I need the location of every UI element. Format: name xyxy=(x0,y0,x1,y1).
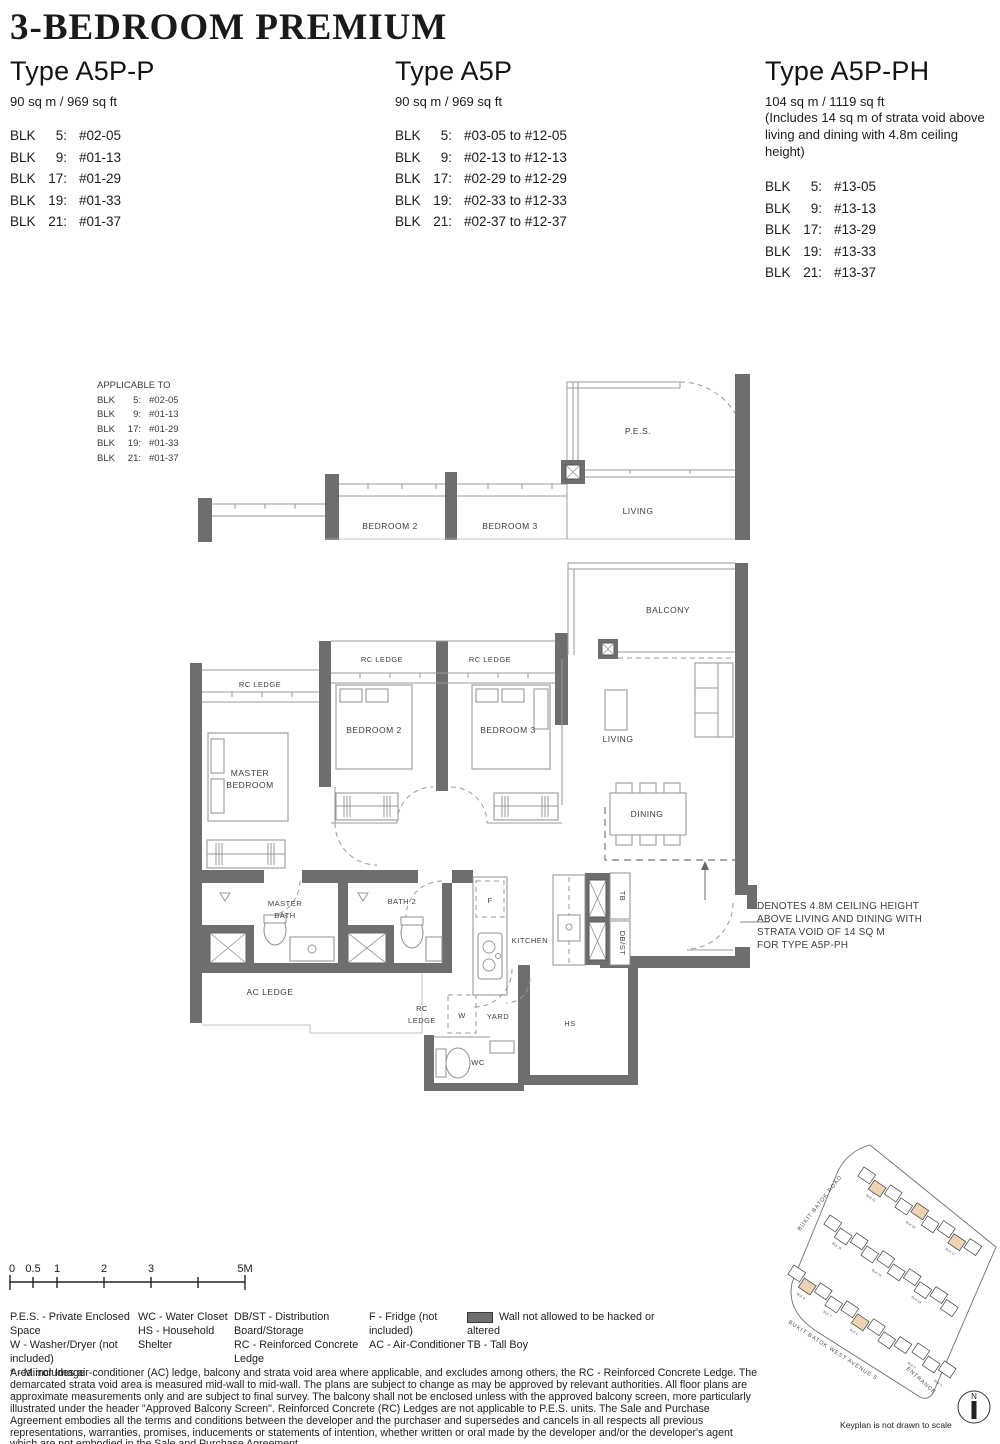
keyplan-unit xyxy=(964,1239,982,1256)
block-row: BLK9:#01-13 xyxy=(10,147,340,169)
keyplan-unit xyxy=(921,1216,939,1233)
legend-column-4: F - Fridge (not included) AC - Air-Condi… xyxy=(369,1310,467,1352)
keyplan-unit xyxy=(937,1221,955,1238)
keyplan-blk-label: BLK 13 xyxy=(871,1268,883,1278)
keyplan-block-row: BLK 3BLK 1 xyxy=(905,1343,957,1389)
keyplan-unit xyxy=(814,1283,832,1300)
type-column-a5p: Type A5P 90 sq m / 969 sq ft BLK5:#03-05… xyxy=(395,56,725,233)
block-row: BLK9:#02-13 to #12-13 xyxy=(395,147,725,169)
block-row: BLK19:#02-33 to #12-33 xyxy=(395,190,725,212)
keyplan-unit xyxy=(877,1251,895,1268)
rc-ledge-label-2: RC LEDGE xyxy=(361,655,403,664)
keyplan-block-row: BLK 9BLK 7BLK 5 xyxy=(781,1265,912,1364)
keyplan-unit xyxy=(850,1233,868,1250)
keyplan-unit xyxy=(887,1264,905,1281)
applicable-row: BLK21:#01-37 xyxy=(97,452,179,467)
keyplan-unit xyxy=(834,1228,852,1245)
keyplan-unit xyxy=(841,1301,859,1318)
strata-void-annotation: DENOTES 4.8M CEILING HEIGHT ABOVE LIVING… xyxy=(757,900,957,952)
block-row: BLK5:#03-05 to #12-05 xyxy=(395,125,725,147)
living-label: LIVING xyxy=(603,734,634,744)
keyplan-unit xyxy=(878,1332,896,1349)
block-row: BLK19:#13-33 xyxy=(765,241,1000,263)
applicable-row: BLK19:#01-33 xyxy=(97,437,179,452)
legend-column-5: Wall not allowed to be hacked or altered… xyxy=(467,1310,667,1352)
svg-text:3: 3 xyxy=(148,1263,154,1275)
keyplan-unit xyxy=(914,1282,932,1299)
keyplan: BLK 21BLK 19BLK 17BLK 11BLK 13BLK 15BLK … xyxy=(778,1135,1000,1440)
keyplan-unit-highlighted xyxy=(851,1314,869,1331)
type-name: Type A5P xyxy=(395,56,725,87)
fridge-label: F xyxy=(487,896,492,905)
type-note: (Includes 14 sq m of strata void above xyxy=(765,109,1000,126)
keyplan-unit xyxy=(858,1167,876,1184)
keyplan-caption: Keyplan is not drawn to scale xyxy=(840,1420,952,1430)
svg-text:0.5: 0.5 xyxy=(25,1263,40,1275)
upper-living-label: LIVING xyxy=(623,506,654,516)
bath2-label: BATH 2 xyxy=(388,897,417,906)
keyplan-blk-label: BLK 11 xyxy=(831,1241,842,1250)
keyplan-unit xyxy=(867,1319,885,1336)
block-list: BLK5:#13-05 BLK9:#13-13 BLK17:#13-29 BLK… xyxy=(765,176,1000,284)
applicable-row: BLK5:#02-05 xyxy=(97,394,179,409)
keyplan-unit-highlighted xyxy=(868,1180,886,1197)
dbst-label: DB/ST xyxy=(618,931,627,956)
master-bedroom-label-2: BEDROOM xyxy=(226,780,273,790)
svg-text:2: 2 xyxy=(101,1263,107,1275)
keyplan-unit xyxy=(788,1265,806,1282)
applicable-to: APPLICABLE TO BLK5:#02-05 BLK9:#01-13 BL… xyxy=(97,379,179,466)
legend-column-2: WC - Water Closet HS - Household Shelter xyxy=(138,1310,233,1352)
compass-icon: N xyxy=(958,1391,990,1423)
block-row: BLK21:#02-37 to #12-37 xyxy=(395,211,725,233)
keyplan-blk-label: BLK 15 xyxy=(911,1295,923,1305)
block-row: BLK9:#13-13 xyxy=(765,198,1000,220)
keyplan-blk-label: BLK 9 xyxy=(796,1292,806,1301)
keyplan-unit xyxy=(903,1269,921,1286)
applicable-row: BLK17:#01-29 xyxy=(97,423,179,438)
dining-label: DINING xyxy=(631,809,664,819)
type-name: Type A5P-PH xyxy=(765,56,1000,87)
keyplan-blk-label: BLK 19 xyxy=(905,1220,917,1230)
type-column-a5p-ph: Type A5P-PH 104 sq m / 1119 sq ft (Inclu… xyxy=(765,56,1000,284)
master-bath-label-2: BATH xyxy=(274,911,295,920)
wc-label: WC xyxy=(471,1058,485,1067)
bedroom3-label: BEDROOM 3 xyxy=(480,725,536,735)
keyplan-unit-highlighted xyxy=(948,1234,966,1251)
upper-partial-plan: P.E.S. LIVING BEDROOM 2 BEDROOM 3 xyxy=(190,368,765,563)
bedroom2-label: BEDROOM 2 xyxy=(346,725,402,735)
master-bath-label-1: MASTER xyxy=(268,899,302,908)
master-bedroom-label-1: MASTER xyxy=(231,768,269,778)
keyplan-unit-highlighted xyxy=(798,1278,816,1295)
keyplan-unit xyxy=(894,1337,912,1354)
rc-ledge-bottom-label-2: LEDGE xyxy=(408,1016,436,1025)
ac-ledge-label: AC LEDGE xyxy=(247,987,294,997)
keyplan-unit xyxy=(861,1246,879,1263)
rc-ledge-bottom-label-1: RC xyxy=(416,1004,428,1013)
legend-column-3: DB/ST - Distribution Board/Storage RC - … xyxy=(234,1310,369,1366)
rc-ledge-label-3: RC LEDGE xyxy=(469,655,511,664)
upper-bedroom3-label: BEDROOM 3 xyxy=(482,521,538,531)
kitchen-label: KITCHEN xyxy=(512,936,548,945)
page-title: 3-BEDROOM PREMIUM xyxy=(10,6,447,49)
keyplan-unit xyxy=(895,1198,913,1215)
block-row: BLK21:#01-37 xyxy=(10,211,340,233)
wall-swatch xyxy=(467,1312,493,1323)
type-area: 90 sq m / 969 sq ft xyxy=(10,94,340,109)
upper-bedroom2-label: BEDROOM 2 xyxy=(362,521,418,531)
keyplan-blk-label: BLK 17 xyxy=(945,1247,957,1257)
rc-ledge-label-master: RC LEDGE xyxy=(239,680,281,689)
floorplan-page: 3-BEDROOM PREMIUM Type A5P-P 90 sq m / 9… xyxy=(0,0,1000,1444)
keyplan-unit xyxy=(912,1343,930,1360)
svg-text:1: 1 xyxy=(54,1263,60,1275)
keyplan-unit xyxy=(824,1215,842,1232)
block-row: BLK17:#02-29 to #12-29 xyxy=(395,168,725,190)
wall-legend-item: Wall not allowed to be hacked or altered xyxy=(467,1310,667,1338)
type-note: living and dining with 4.8m ceiling heig… xyxy=(765,126,1000,160)
keyplan-unit xyxy=(922,1356,940,1373)
keyplan-unit xyxy=(884,1185,902,1202)
block-row: BLK5:#13-05 xyxy=(765,176,1000,198)
keyplan-blk-label: BLK 21 xyxy=(865,1193,877,1203)
hs-label: HS xyxy=(564,1019,575,1028)
svg-text:0: 0 xyxy=(9,1263,15,1275)
tb-label: TB xyxy=(618,891,627,902)
keyplan-rows: BLK 21BLK 19BLK 17BLK 11BLK 13BLK 15BLK … xyxy=(781,1167,982,1389)
type-name: Type A5P-P xyxy=(10,56,340,87)
keyplan-blk-label: BLK 1 xyxy=(933,1379,943,1388)
applicable-row: BLK9:#01-13 xyxy=(97,408,179,423)
keyplan-unit-highlighted xyxy=(911,1203,929,1220)
type-area: 104 sq m / 1119 sq ft xyxy=(765,94,1000,109)
block-row: BLK21:#13-37 xyxy=(765,262,1000,284)
svg-text:5M: 5M xyxy=(237,1263,252,1275)
keyplan-unit xyxy=(940,1300,958,1317)
block-row: BLK17:#01-29 xyxy=(10,168,340,190)
type-area: 90 sq m / 969 sq ft xyxy=(395,94,725,109)
block-row: BLK5:#02-05 xyxy=(10,125,340,147)
keyplan-blk-label: BLK 5 xyxy=(849,1328,859,1337)
type-column-a5p-p: Type A5P-P 90 sq m / 969 sq ft BLK5:#02-… xyxy=(10,56,340,233)
keyplan-blk-label: BLK 7 xyxy=(822,1310,832,1319)
main-floor-plan: RC LEDGE RC LEDGE RC LEDGE BALCONY MASTE… xyxy=(190,555,770,1095)
balcony-label: BALCONY xyxy=(646,605,690,615)
upper-pes-label: P.E.S. xyxy=(625,426,651,436)
block-row: BLK19:#01-33 xyxy=(10,190,340,212)
keyplan-unit xyxy=(930,1287,948,1304)
svg-text:N: N xyxy=(971,1392,977,1401)
applicable-title: APPLICABLE TO xyxy=(97,379,179,394)
block-row: BLK17:#13-29 xyxy=(765,219,1000,241)
block-list: BLK5:#03-05 to #12-05 BLK9:#02-13 to #12… xyxy=(395,125,725,233)
washer-label: W xyxy=(458,1011,466,1020)
block-list: BLK5:#02-05 BLK9:#01-13 BLK17:#01-29 BLK… xyxy=(10,125,340,233)
scale-bar: 0 0.5 1 2 3 5M xyxy=(8,1262,268,1294)
keyplan-unit xyxy=(825,1296,843,1313)
yard-label: YARD xyxy=(487,1012,509,1021)
disclaimer-text: Area includes air-conditioner (AC) ledge… xyxy=(10,1368,762,1444)
